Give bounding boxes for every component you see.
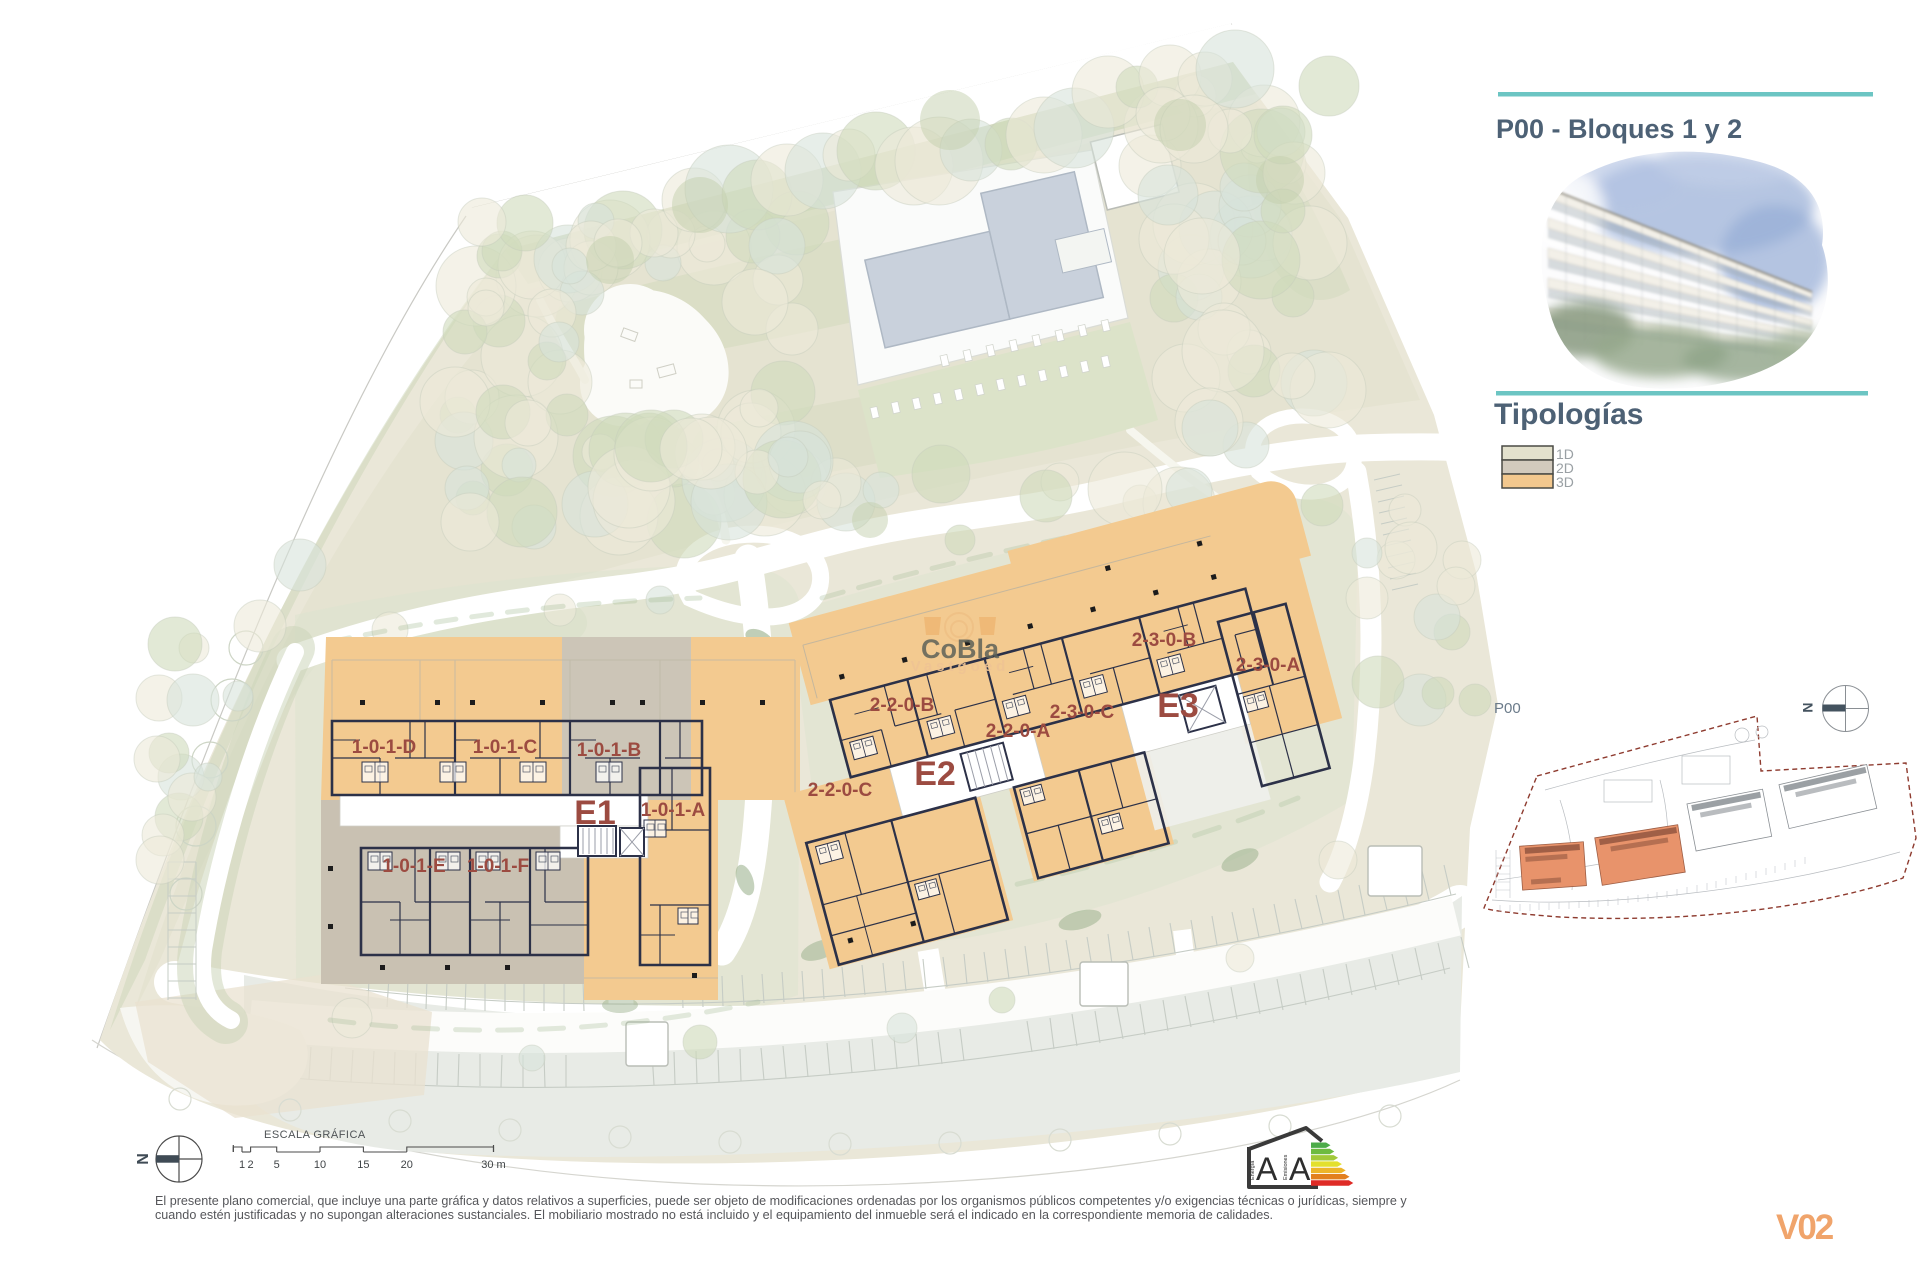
svg-text:Vastgoed: Vastgoed (911, 658, 1010, 675)
svg-text:Emisiones: Emisiones (1283, 1154, 1289, 1180)
svg-text:P00 - Bloques 1 y 2: P00 - Bloques 1 y 2 (1496, 114, 1742, 144)
svg-text:N: N (135, 1153, 152, 1165)
svg-text:El presente plano comercial, q: El presente plano comercial, que incluye… (155, 1194, 1407, 1208)
svg-text:ESCALA GRÁFICA: ESCALA GRÁFICA (264, 1128, 366, 1141)
svg-text:2-3-0-A: 2-3-0-A (1236, 655, 1301, 676)
svg-text:2-3-0-C: 2-3-0-C (1050, 702, 1115, 723)
svg-text:Tipologías: Tipologías (1494, 398, 1643, 431)
svg-text:1-0-1-A: 1-0-1-A (641, 800, 706, 821)
svg-text:15: 15 (357, 1159, 369, 1171)
svg-text:30 m: 30 m (481, 1159, 505, 1171)
svg-text:1: 1 (239, 1159, 245, 1171)
svg-text:E3: E3 (1157, 687, 1199, 725)
svg-text:Energía: Energía (1250, 1160, 1256, 1180)
svg-text:2-2-0-A: 2-2-0-A (986, 721, 1051, 742)
svg-text:cuando estén justificadas y no: cuando estén justificadas y no supongan … (155, 1208, 1273, 1222)
svg-text:1-0-1-F: 1-0-1-F (467, 856, 529, 877)
svg-text:1-0-1-B: 1-0-1-B (577, 740, 641, 761)
svg-text:10: 10 (314, 1159, 326, 1171)
svg-text:A: A (1289, 1151, 1311, 1187)
svg-text:A: A (1256, 1151, 1278, 1187)
svg-text:E2: E2 (914, 755, 956, 793)
svg-text:E1: E1 (574, 794, 616, 832)
svg-text:2-2-0-C: 2-2-0-C (808, 780, 873, 801)
svg-text:2-3-0-B: 2-3-0-B (1132, 630, 1196, 651)
svg-text:20: 20 (401, 1159, 413, 1171)
svg-text:1-0-1-E: 1-0-1-E (382, 856, 445, 877)
svg-text:V02: V02 (1776, 1208, 1834, 1247)
svg-text:3D: 3D (1556, 474, 1574, 490)
svg-text:1-0-1-C: 1-0-1-C (473, 737, 538, 758)
svg-text:N: N (1800, 702, 1816, 712)
svg-text:5: 5 (274, 1159, 280, 1171)
svg-text:2: 2 (248, 1159, 254, 1171)
svg-text:P00: P00 (1494, 700, 1521, 717)
svg-text:2-2-0-B: 2-2-0-B (870, 695, 934, 716)
svg-text:1-0-1-D: 1-0-1-D (352, 737, 416, 758)
